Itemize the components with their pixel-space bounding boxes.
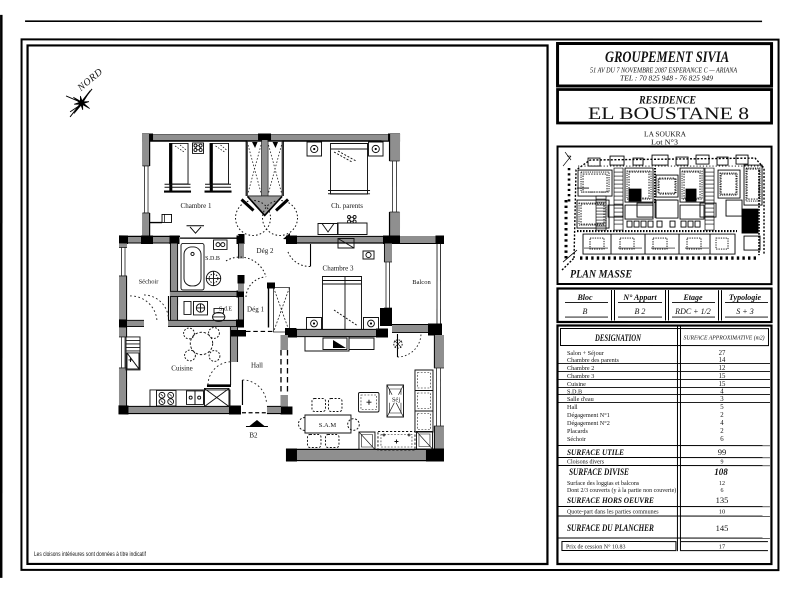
svg-text:Dég 1: Dég 1 — [247, 305, 264, 313]
svg-text:12: 12 — [719, 365, 726, 372]
svg-text:Chambre 1: Chambre 1 — [181, 202, 212, 210]
svg-text:15: 15 — [719, 381, 726, 388]
svg-text:B: B — [583, 307, 588, 316]
svg-text:9: 9 — [720, 460, 723, 466]
svg-text:5: 5 — [720, 404, 724, 411]
svg-text:B2: B2 — [249, 431, 258, 439]
svg-text:Etage: Etage — [682, 293, 703, 302]
svg-text:27: 27 — [719, 350, 726, 357]
svg-text:Ch. parents: Ch. parents — [331, 202, 363, 210]
svg-text:10: 10 — [719, 509, 726, 516]
svg-text:S.A.M: S.A.M — [319, 422, 337, 429]
svg-text:Les cloisons intérieures sont: Les cloisons intérieures sont données à … — [34, 552, 146, 558]
svg-text:N° Appart: N° Appart — [622, 293, 657, 302]
svg-text:15: 15 — [719, 373, 726, 380]
svg-text:Quote-part dans les parties: Quote-part dans les parties communes — [567, 510, 659, 516]
svg-text:Typologie: Typologie — [729, 293, 762, 302]
svg-text:2: 2 — [720, 428, 724, 435]
svg-text:Bloc: Bloc — [576, 293, 593, 302]
svg-text:Cuisine: Cuisine — [171, 364, 192, 372]
svg-text:Séchoir: Séchoir — [567, 436, 586, 443]
svg-text:99: 99 — [718, 447, 727, 457]
svg-text:SURFACE APPROXIMATIVE (m2): SURFACE APPROXIMATIVE (m2) — [683, 335, 764, 342]
svg-text:Dégagement N°1: Dégagement N°1 — [567, 412, 610, 419]
svg-text:51 AV DU 7 NOVEMBRE 2087 ESPER: 51 AV DU 7 NOVEMBRE 2087 ESPERANCE C — A… — [590, 67, 738, 75]
svg-text:SURFACE DIVISE: SURFACE DIVISE — [569, 468, 629, 478]
svg-text:Lot N°3: Lot N°3 — [651, 138, 678, 147]
svg-text:Balcon: Balcon — [412, 279, 431, 286]
svg-text:Séchoir: Séchoir — [139, 278, 160, 285]
svg-text:Dég 2: Dég 2 — [257, 247, 274, 255]
svg-text:S.d.E: S.d.E — [219, 306, 232, 312]
svg-text:Salon + Séjour: Salon + Séjour — [567, 350, 604, 357]
svg-text:DESIGNATION: DESIGNATION — [594, 334, 642, 344]
svg-text:Cloisons divers: Cloisons divers — [567, 460, 605, 466]
svg-text:6: 6 — [720, 488, 723, 494]
svg-text:S.D.B: S.D.B — [567, 389, 582, 396]
svg-text:GROUPEMENT SIVIA: GROUPEMENT SIVIA — [605, 49, 729, 66]
svg-text:6: 6 — [720, 436, 724, 443]
svg-text:Séj: Séj — [392, 396, 401, 403]
svg-text:Chambre 3: Chambre 3 — [323, 264, 354, 272]
svg-text:Dégagement N°2: Dégagement N°2 — [567, 420, 610, 427]
svg-text:Chambre 3: Chambre 3 — [567, 373, 594, 380]
svg-text:B 2: B 2 — [635, 307, 646, 316]
svg-text:135: 135 — [716, 495, 729, 505]
svg-text:Cuisine: Cuisine — [567, 381, 586, 388]
svg-text:Chambre des parents: Chambre des parents — [567, 357, 619, 364]
svg-text:4: 4 — [720, 420, 724, 427]
svg-text:SURFACE DU PLANCHER: SURFACE DU PLANCHER — [567, 523, 654, 533]
svg-text:TEL : 70 825 948 - 76 825 949: TEL : 70 825 948 - 76 825 949 — [620, 75, 714, 83]
svg-text:Prix de cession N° 10.83: Prix de cession N° 10.83 — [566, 544, 626, 551]
svg-text:4: 4 — [720, 389, 724, 396]
svg-text:3: 3 — [720, 396, 724, 403]
svg-text:Chambre 2: Chambre 2 — [567, 365, 594, 372]
svg-text:SURFACE HORS OEUVRE: SURFACE HORS OEUVRE — [567, 495, 654, 505]
svg-text:S + 3: S + 3 — [736, 307, 753, 316]
svg-text:Hall: Hall — [251, 361, 263, 369]
svg-text:Salle d'eau: Salle d'eau — [567, 396, 594, 403]
svg-text:108: 108 — [714, 467, 728, 477]
svg-text:RDC + 1/2: RDC + 1/2 — [674, 307, 711, 316]
svg-text:S.D.B: S.D.B — [205, 256, 220, 262]
svg-text:EL BOUSTANE 8: EL BOUSTANE 8 — [588, 103, 749, 123]
svg-text:12: 12 — [719, 481, 725, 487]
svg-text:145: 145 — [716, 523, 729, 533]
svg-text:Hall: Hall — [567, 404, 578, 411]
svg-text:17: 17 — [719, 544, 726, 551]
svg-text:Placards: Placards — [567, 428, 589, 435]
svg-text:14: 14 — [719, 357, 726, 364]
svg-text:Dont 2/3 couverts (y à la part: Dont 2/3 couverts (y à la partie non cou… — [567, 487, 676, 494]
svg-text:PLAN MASSE: PLAN MASSE — [570, 269, 632, 281]
svg-text:SURFACE UTILE: SURFACE UTILE — [567, 447, 624, 457]
svg-text:Surface des loggias et balcons: Surface des loggias et balcons — [567, 480, 640, 487]
svg-text:2: 2 — [720, 412, 724, 419]
